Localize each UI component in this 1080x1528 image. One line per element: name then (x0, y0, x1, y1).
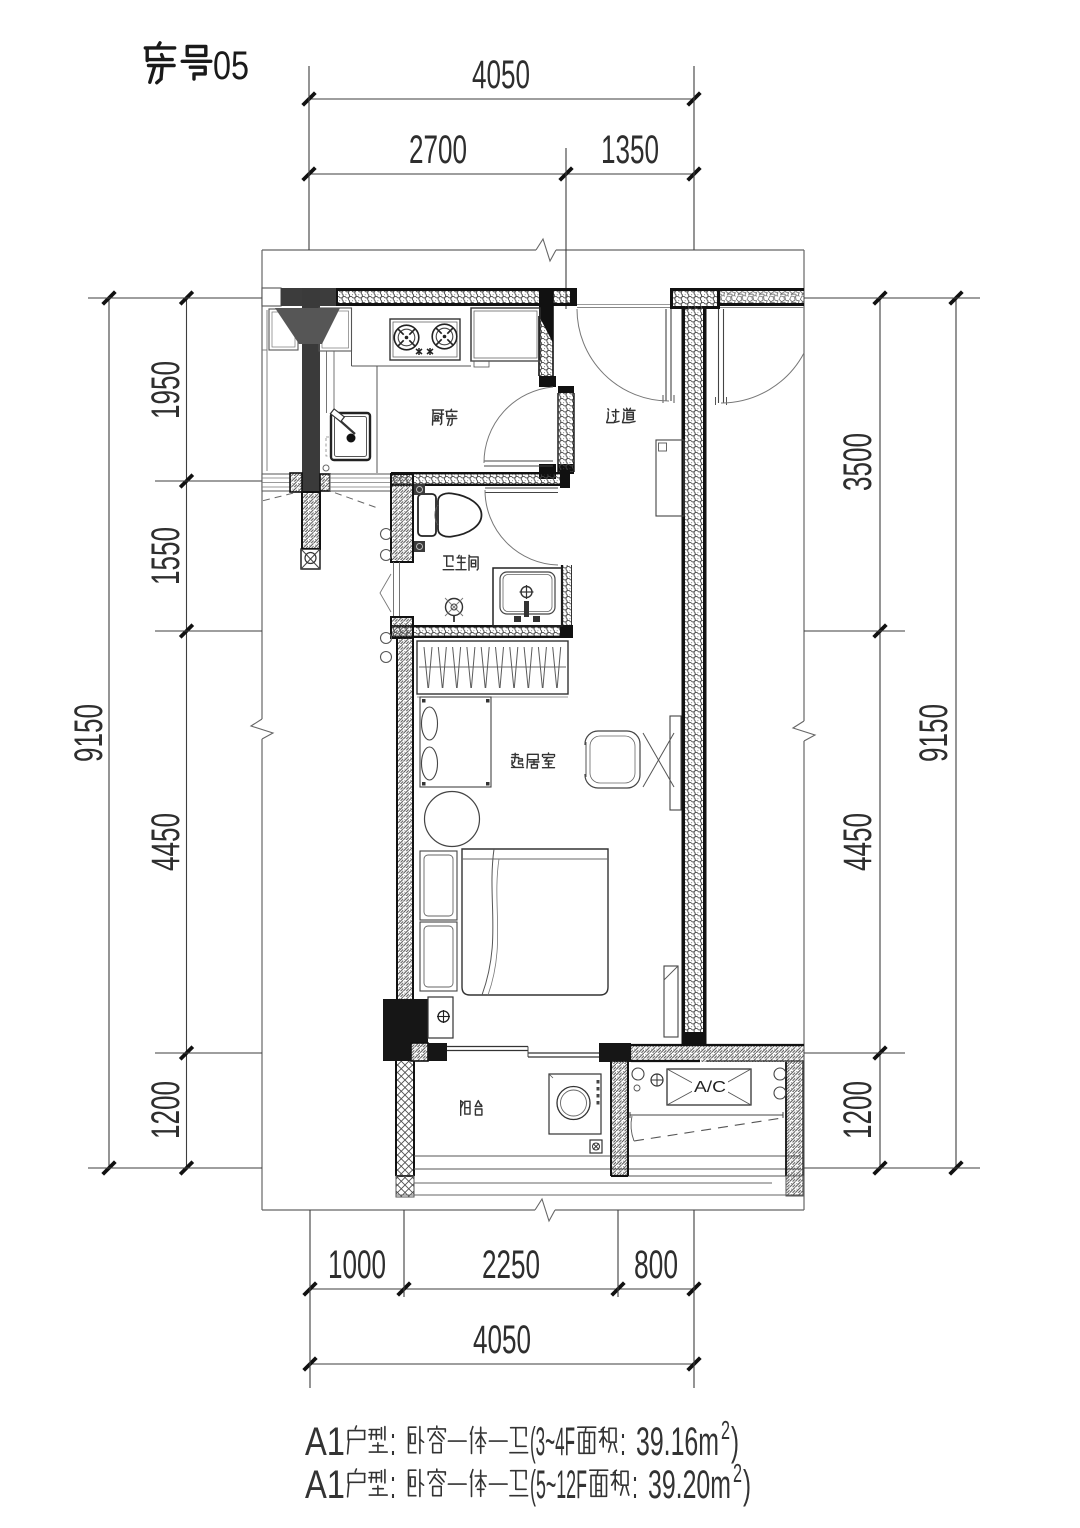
svg-text:1000: 1000 (328, 1243, 386, 1287)
svg-text:3500: 3500 (836, 433, 880, 491)
svg-text:): ) (743, 1463, 751, 1507)
svg-text:05: 05 (213, 44, 249, 88)
svg-text::: : (390, 1420, 396, 1464)
svg-text:1200: 1200 (836, 1081, 880, 1139)
svg-text:(3~4F: (3~4F (530, 1420, 575, 1464)
svg-text:9150: 9150 (912, 704, 956, 762)
svg-text:1950: 1950 (144, 361, 188, 419)
svg-text:2: 2 (733, 1458, 742, 1488)
svg-text:2: 2 (721, 1415, 730, 1445)
svg-text:4050: 4050 (473, 1318, 531, 1362)
svg-text:(5~12F: (5~12F (530, 1463, 587, 1507)
svg-text:9150: 9150 (67, 704, 111, 762)
svg-text:A1: A1 (305, 1420, 345, 1464)
svg-text:2250: 2250 (482, 1243, 540, 1287)
svg-text::: : (632, 1463, 638, 1507)
svg-text:4050: 4050 (472, 53, 530, 97)
svg-text:1550: 1550 (144, 527, 188, 585)
svg-text:A/C: A/C (694, 1079, 726, 1096)
svg-text:1200: 1200 (144, 1081, 188, 1139)
svg-text:39.20m: 39.20m (648, 1463, 731, 1507)
svg-text:800: 800 (634, 1243, 678, 1287)
svg-text:1350: 1350 (601, 128, 659, 172)
svg-text:4450: 4450 (836, 813, 880, 871)
svg-text::: : (620, 1420, 626, 1464)
svg-text::: : (390, 1463, 396, 1507)
svg-text:2700: 2700 (409, 128, 467, 172)
svg-text:4450: 4450 (144, 813, 188, 871)
svg-text:39.16m: 39.16m (636, 1420, 719, 1464)
svg-text:A1: A1 (305, 1463, 345, 1507)
